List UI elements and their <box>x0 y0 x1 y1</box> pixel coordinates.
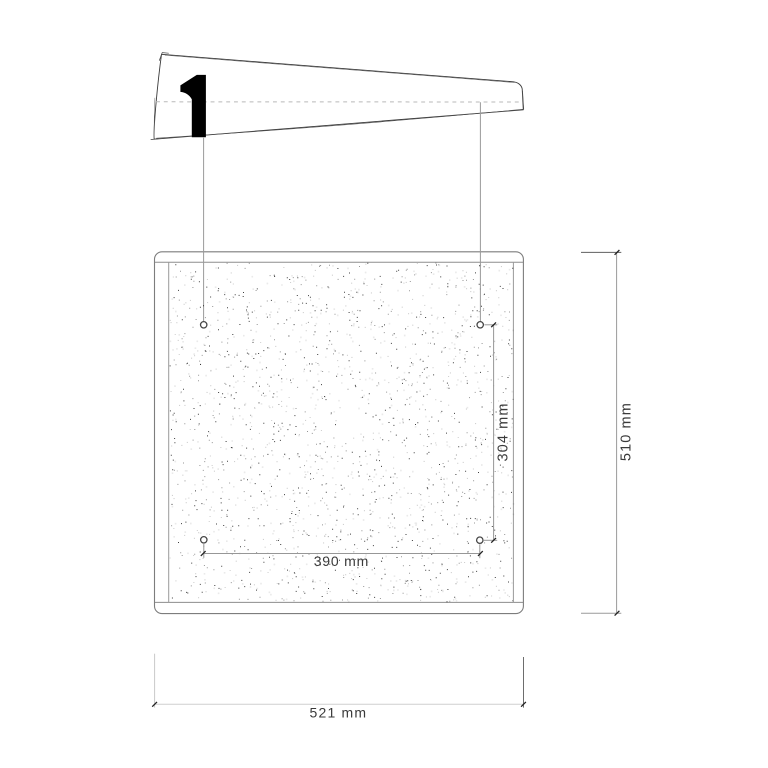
svg-text:390 mm: 390 mm <box>314 553 369 569</box>
svg-text:304 mm: 304 mm <box>495 403 511 462</box>
svg-text:521 mm: 521 mm <box>310 704 368 720</box>
svg-text:510 mm: 510 mm <box>618 402 634 461</box>
